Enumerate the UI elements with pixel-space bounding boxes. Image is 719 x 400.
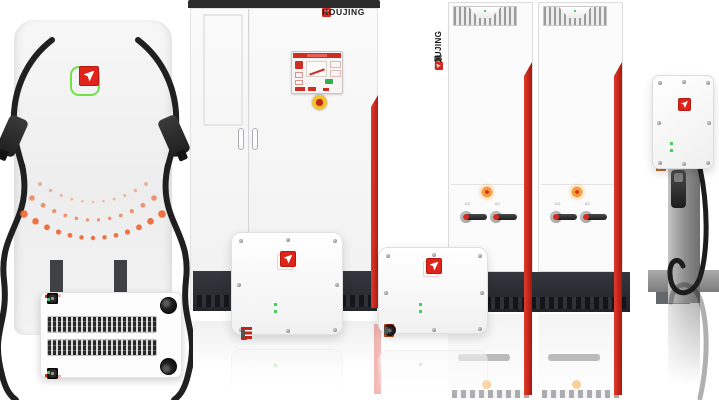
screw (286, 238, 290, 242)
arrow-glyph (284, 255, 293, 264)
tower-reflection (538, 314, 623, 400)
wall-inverter-2[interactable] (378, 247, 488, 334)
pile-logo-frame (70, 66, 100, 96)
hmi-chart (306, 61, 327, 77)
vent-grille (47, 339, 157, 356)
screw (286, 329, 290, 333)
screw (682, 162, 686, 166)
brand-logo-icon (435, 62, 443, 70)
door-handle-left (238, 128, 244, 150)
hmi-button (323, 88, 329, 91)
wallbox-charger[interactable] (652, 75, 714, 169)
hmi-green-button (325, 79, 333, 84)
screw (384, 291, 388, 295)
screw (657, 121, 661, 125)
wall-inverter-1[interactable] (231, 232, 343, 335)
warning-indicator (572, 187, 582, 197)
screw (335, 283, 339, 287)
power-module-mirrored: HOUJING (41, 336, 181, 379)
door-handle-right (252, 128, 258, 150)
brand-logo-icon (79, 66, 99, 86)
red-accent-stripe (524, 62, 532, 395)
screw (239, 239, 243, 243)
black-connector (47, 369, 58, 380)
power-module: HOUJING (41, 293, 181, 336)
brand-logo-icon (280, 251, 296, 267)
switch-label-ac: AC (585, 202, 590, 206)
hmi-box (295, 80, 303, 85)
module-notch (559, 7, 591, 18)
power-module-unit[interactable]: HOUJING HOUJING (40, 292, 182, 378)
screw (658, 81, 662, 85)
brand-logo-text: HOUJING (322, 7, 365, 17)
hmi-button (308, 87, 316, 91)
warning-indicator (482, 187, 492, 197)
arrow-glyph (436, 64, 441, 69)
screw (237, 283, 241, 287)
inverter-1-reflection (231, 349, 343, 400)
screw (480, 291, 484, 295)
screw (706, 161, 710, 165)
dc-rotary-switch (550, 209, 577, 225)
hmi-header (293, 53, 341, 58)
fan-port (160, 358, 177, 375)
power-cabinet[interactable]: HOUJING (188, 0, 380, 400)
switch-label-ac: AC (495, 202, 500, 206)
brand-logo-icon (426, 258, 442, 274)
switch-label-dc: DC (555, 202, 561, 206)
hmi-logo (295, 61, 303, 69)
screw (706, 81, 710, 85)
emergency-stop-button (312, 95, 327, 110)
hmi-screen (291, 51, 343, 94)
rack-tower-right: DC AC (538, 2, 623, 272)
hmi-box (330, 70, 341, 77)
rack-tower-left: DC AC (448, 2, 533, 272)
screw (432, 253, 436, 257)
ac-rotary-switch (580, 209, 607, 225)
module-notch (469, 7, 501, 18)
wallbox-gun (671, 170, 686, 208)
arrow-glyph (84, 71, 95, 82)
product-showcase: HOUJING HOUJING (0, 0, 719, 400)
arrow-glyph (681, 101, 688, 108)
screw (478, 254, 482, 258)
screw (386, 254, 390, 258)
screw (682, 80, 686, 84)
decorative-dot-arcs (10, 172, 176, 267)
switch-label-dc: DC (465, 202, 471, 206)
screw (658, 161, 662, 165)
screw (333, 328, 337, 332)
panel-line (451, 184, 530, 185)
arrow-glyph (430, 262, 439, 271)
vertical-brand: HOUJING 厚景 (432, 2, 445, 70)
inverter-2-reflection (378, 350, 488, 400)
ac-rotary-switch (490, 209, 517, 225)
hmi-box (295, 72, 303, 78)
rack-module (543, 6, 607, 26)
brand-logo-icon (678, 98, 691, 111)
fan-port (160, 297, 177, 314)
panel-line (541, 184, 620, 185)
screw (707, 121, 711, 125)
gun-face (674, 173, 683, 182)
dc-rotary-switch (460, 209, 487, 225)
screw (333, 239, 337, 243)
hmi-button (295, 87, 305, 91)
rack-power-system[interactable]: HOUJING 厚景 (428, 0, 630, 400)
red-accent-stripe (371, 95, 378, 308)
vent-grille (47, 316, 157, 333)
rack-module (453, 6, 517, 26)
red-accent-stripe (614, 62, 622, 395)
hmi-box (330, 61, 341, 68)
screw (478, 327, 482, 331)
screw (432, 328, 436, 332)
ventilation-grille (203, 14, 243, 126)
